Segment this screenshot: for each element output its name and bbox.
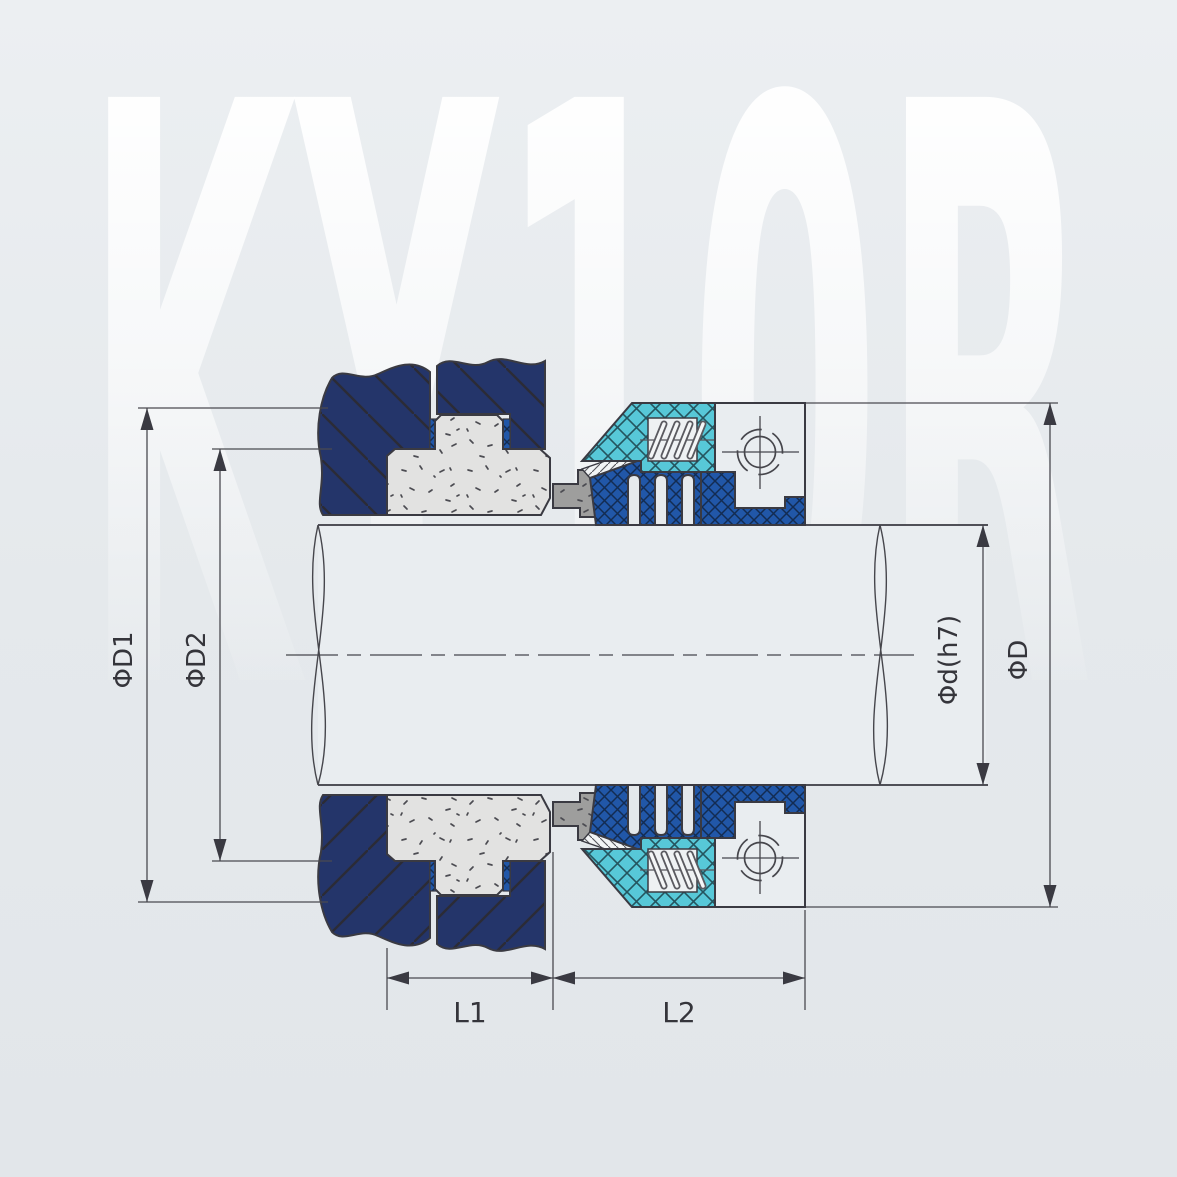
label-phi-d-h7: Φd(h7) bbox=[934, 615, 964, 705]
label-phi-d: ΦD bbox=[1004, 640, 1034, 681]
label-phi-d1: ΦD1 bbox=[109, 631, 139, 688]
technical-drawing-page: KY10R bbox=[0, 0, 1177, 1177]
label-l1: L1 bbox=[453, 996, 486, 1029]
shaft bbox=[286, 525, 988, 785]
label-l2: L2 bbox=[662, 996, 695, 1029]
label-phi-d2: ΦD2 bbox=[182, 631, 212, 688]
seal-cross-section-drawing: KY10R bbox=[0, 0, 1177, 1177]
